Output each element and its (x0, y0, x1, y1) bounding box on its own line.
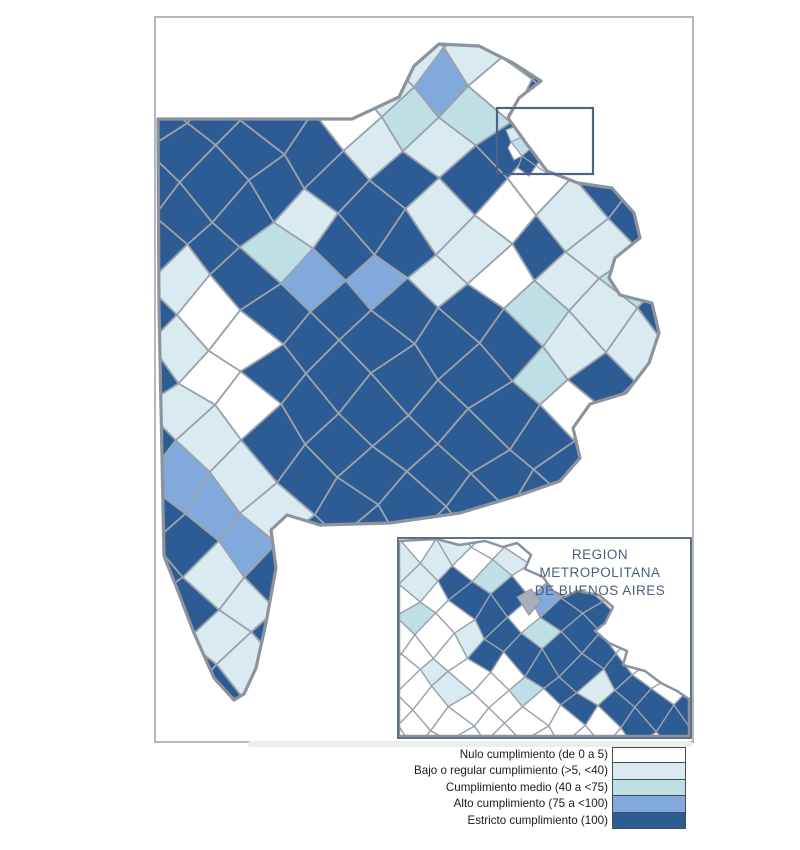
legend-color-swatch (612, 795, 686, 812)
legend-row: Cumplimiento medio (40 a <75) (250, 780, 686, 796)
legend-row: Estricto cumplimiento (100) (250, 813, 686, 829)
legend-color-swatch (612, 812, 686, 829)
inset-title-line: METROPOLITANA (515, 564, 685, 582)
metro-inset-box: REGION METROPOLITANA DE BUENOS AIRES (397, 537, 692, 739)
inset-title-line: DE BUENOS AIRES (515, 582, 685, 600)
map-legend: Nulo cumplimiento (de 0 a 5)Bajo o regul… (250, 747, 686, 829)
legend-label: Cumplimiento medio (40 a <75) (250, 780, 612, 796)
inset-title: REGION METROPOLITANA DE BUENOS AIRES (515, 546, 685, 600)
legend-label: Bajo o regular cumplimiento (>5, <40) (250, 763, 612, 779)
legend-color-swatch (612, 779, 686, 796)
legend-row: Alto cumplimiento (75 a <100) (250, 796, 686, 812)
legend-color-swatch (612, 762, 686, 779)
page: { "page": { "background": "#ffffff" }, "… (0, 0, 800, 850)
legend-color-swatch (612, 747, 686, 763)
legend-row: Nulo cumplimiento (de 0 a 5) (250, 747, 686, 763)
inset-title-line: REGION (515, 546, 685, 564)
legend-label: Estricto cumplimiento (100) (250, 813, 612, 829)
legend-label: Alto cumplimiento (75 a <100) (250, 796, 612, 812)
legend-label: Nulo cumplimiento (de 0 a 5) (250, 747, 612, 763)
legend-row: Bajo o regular cumplimiento (>5, <40) (250, 763, 686, 779)
